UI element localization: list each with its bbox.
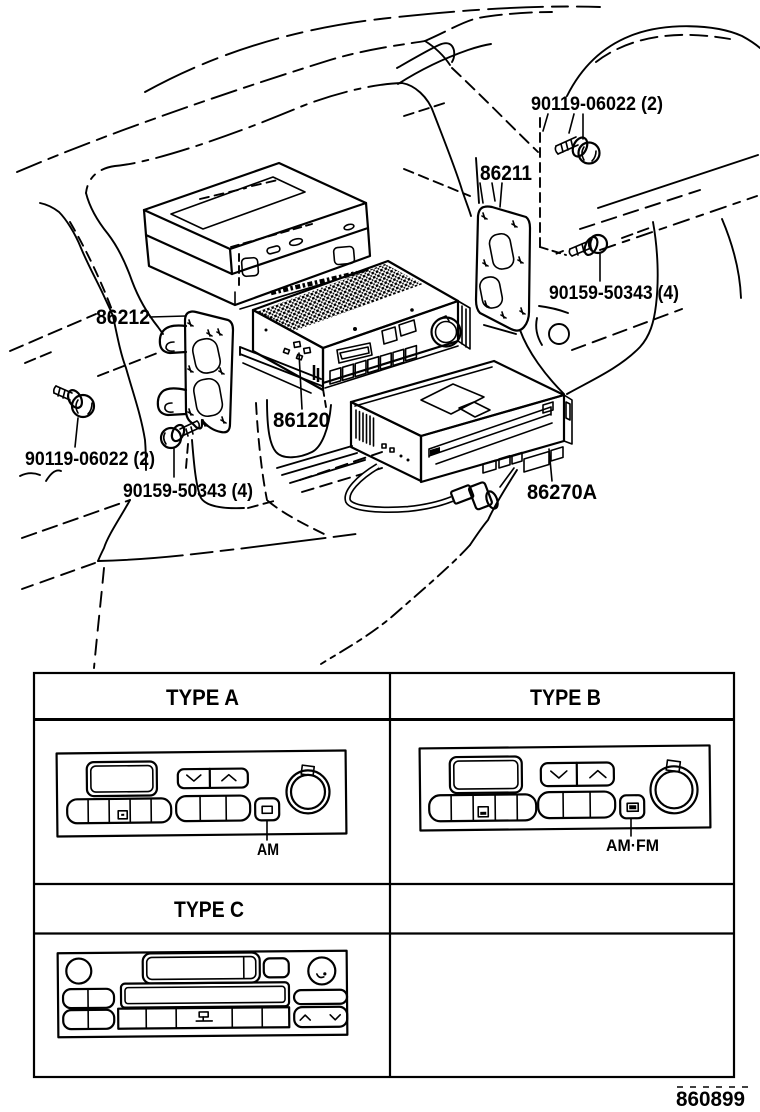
svg-text:90159-50343 (4): 90159-50343 (4) xyxy=(549,282,679,304)
svg-text:90119-06022 (2): 90119-06022 (2) xyxy=(531,93,663,115)
svg-text:AM·FM: AM·FM xyxy=(606,836,659,855)
svg-text:86212: 86212 xyxy=(96,306,150,329)
svg-text:86211: 86211 xyxy=(480,162,532,185)
svg-text:TYPE A: TYPE A xyxy=(166,685,239,710)
svg-text:TYPE C: TYPE C xyxy=(174,897,244,922)
svg-text:86270A: 86270A xyxy=(527,481,597,504)
svg-text:90159-50343 (4): 90159-50343 (4) xyxy=(123,480,253,502)
svg-text:90119-06022 (2): 90119-06022 (2) xyxy=(25,448,155,470)
svg-text:860899: 860899 xyxy=(676,1088,745,1111)
svg-text:86120: 86120 xyxy=(273,409,330,432)
svg-text:AM: AM xyxy=(257,840,279,859)
svg-text:TYPE B: TYPE B xyxy=(530,685,601,710)
